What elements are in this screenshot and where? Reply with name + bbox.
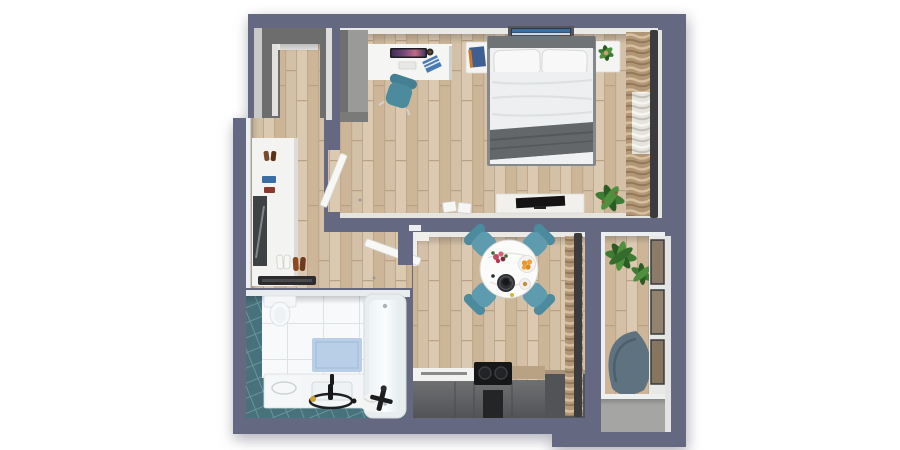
hall-living-wall-trim [409, 225, 421, 231]
pillow-left [494, 49, 541, 76]
apartment [233, 14, 686, 447]
balcony-trim-right [665, 236, 671, 432]
sink-vanity-washer [264, 374, 364, 408]
curtain-rod [650, 30, 658, 218]
balcony-floor-step [601, 394, 667, 432]
keyboard [399, 62, 416, 69]
room-bedroom [320, 26, 662, 218]
black-faucet [328, 384, 333, 400]
room-balcony [601, 232, 671, 432]
lemon [510, 293, 514, 297]
burner-right [495, 367, 507, 379]
balcony-trim-top [605, 232, 665, 236]
round-dining-table [480, 240, 538, 298]
floor-plan-canvas [0, 0, 900, 450]
closet-floor [280, 44, 320, 122]
living-curtains [565, 233, 583, 417]
closet-shadow [280, 44, 320, 52]
bath-mat [312, 338, 362, 372]
room-bathroom [246, 290, 410, 418]
gold-knob [310, 396, 316, 402]
floor-plan-svg [0, 0, 900, 450]
glass-railing [649, 236, 666, 398]
fruit-bowl [519, 256, 536, 273]
closet-trim [326, 28, 332, 120]
washing-machine [266, 376, 302, 406]
nightstand-right [592, 41, 620, 72]
room-walk-in-closet [254, 28, 332, 122]
sink-faucet [330, 374, 334, 385]
closet-shelf-edge-v [272, 44, 278, 116]
monitor-screen [392, 50, 426, 57]
living-trim-top [413, 232, 585, 237]
bedroom-trim-bottom [340, 213, 658, 218]
small-cup [491, 274, 495, 278]
double-bed [487, 36, 596, 166]
bedroom-trim-top [340, 28, 658, 34]
sheer-curtain [632, 92, 652, 154]
desk [368, 44, 452, 80]
headboard [488, 36, 595, 49]
doormat-inner [262, 279, 312, 282]
side-plate [520, 279, 531, 290]
tv-bench [496, 194, 584, 213]
black-knob [352, 399, 357, 404]
bedroom-curtains [626, 30, 658, 218]
tall-dark-cabinet [483, 390, 503, 418]
wood-counter [512, 366, 545, 379]
dark-plate-with-cup [497, 274, 515, 292]
pillow-right [542, 49, 588, 76]
nightstand-left [466, 42, 490, 73]
burner-left [479, 367, 491, 379]
living-curtain-rod [574, 233, 582, 417]
kitchen [413, 362, 585, 418]
bedroom-wardrobe [340, 30, 368, 122]
